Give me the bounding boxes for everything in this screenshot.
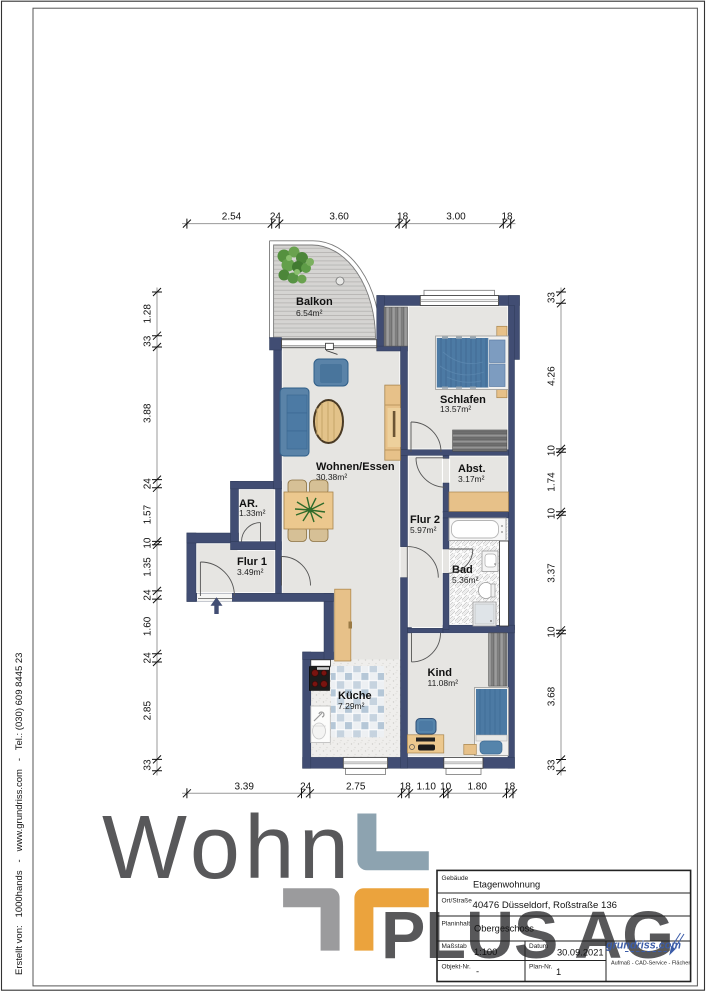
svg-text:10: 10 (547, 445, 558, 457)
svg-text:18: 18 (397, 212, 409, 223)
svg-text:24: 24 (143, 478, 154, 490)
svg-text:33: 33 (547, 759, 558, 771)
svg-text:Obergeschoss: Obergeschoss (474, 924, 534, 934)
svg-text:3.17m²: 3.17m² (458, 474, 485, 484)
svg-text:1: 1 (556, 967, 561, 977)
svg-text:Maßstab: Maßstab (442, 943, 468, 950)
svg-text:Datum: Datum (529, 943, 548, 950)
svg-text:18: 18 (504, 781, 516, 792)
svg-text:1.60: 1.60 (143, 616, 154, 636)
svg-text:Gebäude: Gebäude (442, 875, 469, 882)
svg-text:grundriss.com: grundriss.com (605, 940, 681, 952)
svg-text:3.37: 3.37 (547, 563, 558, 583)
svg-text:5.97m²: 5.97m² (410, 525, 437, 535)
svg-text:3.60: 3.60 (329, 212, 349, 223)
svg-text:Plan-Nr.: Plan-Nr. (529, 964, 553, 971)
svg-text:24: 24 (270, 212, 282, 223)
svg-text:3.00: 3.00 (446, 212, 466, 223)
svg-text:Planinhalt: Planinhalt (442, 921, 471, 928)
svg-text:1.10: 1.10 (416, 781, 436, 792)
svg-text:4.26: 4.26 (547, 366, 558, 386)
svg-text:Ort/Straße: Ort/Straße (442, 898, 473, 905)
svg-text:11.08m²: 11.08m² (428, 678, 459, 688)
svg-text:24: 24 (143, 589, 154, 601)
svg-text:33: 33 (143, 335, 154, 347)
svg-text:10: 10 (547, 626, 558, 638)
svg-text:24: 24 (300, 781, 312, 792)
svg-text:30.38m²: 30.38m² (316, 472, 347, 482)
svg-text:24: 24 (143, 652, 154, 664)
svg-text:6.54m²: 6.54m² (296, 308, 323, 318)
svg-text:Wohn: Wohn (102, 798, 353, 898)
svg-text:5.36m²: 5.36m² (452, 575, 479, 585)
svg-text:3.49m²: 3.49m² (237, 567, 264, 577)
svg-text:1.80: 1.80 (467, 781, 487, 792)
svg-text:18: 18 (400, 781, 412, 792)
svg-text:Objekt-Nr.: Objekt-Nr. (442, 964, 471, 971)
svg-text:2.54: 2.54 (222, 212, 242, 223)
svg-text:3.88: 3.88 (143, 403, 154, 423)
svg-text:1.28: 1.28 (143, 304, 154, 324)
svg-text:1.35: 1.35 (143, 557, 154, 577)
svg-text:1:100: 1:100 (474, 947, 497, 957)
svg-text:1.57: 1.57 (143, 504, 154, 524)
svg-text:-: - (476, 967, 479, 977)
svg-text:13.57m²: 13.57m² (440, 404, 471, 414)
svg-text:1.33m²: 1.33m² (239, 508, 266, 518)
svg-text:2.85: 2.85 (143, 701, 154, 721)
svg-text:30.09.2021: 30.09.2021 (557, 948, 604, 958)
svg-text:10: 10 (440, 781, 452, 792)
svg-text:Erstellt von: 1000hands -: Erstellt von: 1000hands - www.grundriss.… (14, 653, 25, 975)
svg-text:10: 10 (547, 508, 558, 520)
svg-text:7.29m²: 7.29m² (338, 701, 365, 711)
svg-text:Balkon: Balkon (296, 296, 333, 308)
svg-text:18: 18 (501, 212, 513, 223)
svg-text:33: 33 (143, 759, 154, 771)
svg-text:3.68: 3.68 (547, 686, 558, 706)
svg-text:2.75: 2.75 (346, 781, 366, 792)
svg-text:Etagenwohnung: Etagenwohnung (473, 880, 540, 890)
svg-text:3.39: 3.39 (234, 781, 254, 792)
svg-text:40476 Düsseldorf, Roßstraße 13: 40476 Düsseldorf, Roßstraße 136 (473, 900, 618, 911)
svg-text:Aufmaß - CAD-Service - Flächen: Aufmaß - CAD-Service - Flächen (611, 960, 691, 966)
svg-text:10: 10 (143, 537, 154, 549)
svg-text:33: 33 (547, 292, 558, 304)
svg-text:1.74: 1.74 (547, 472, 558, 492)
